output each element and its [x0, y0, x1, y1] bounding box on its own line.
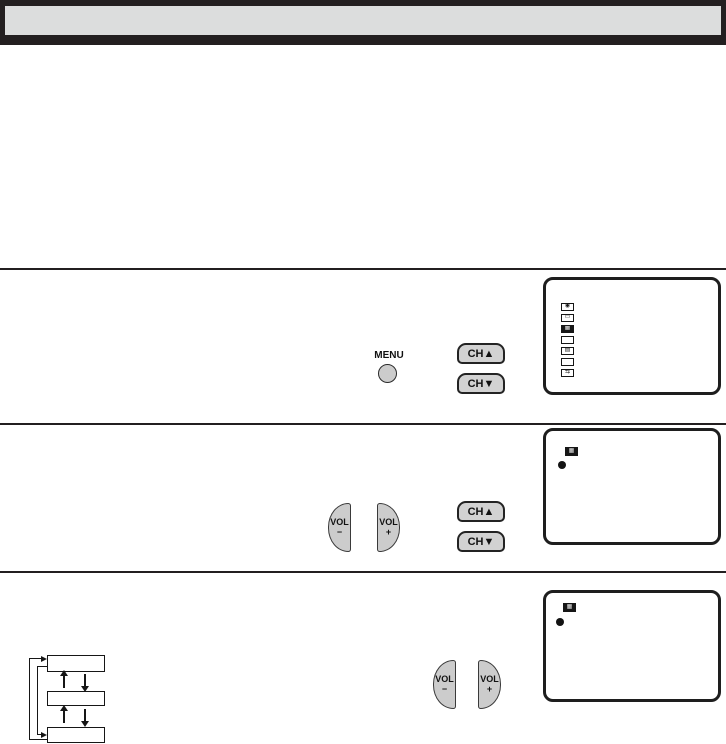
osd-adjust-screen: ▦ [543, 590, 721, 702]
osd-menu-icon-1: ◉ [561, 303, 574, 311]
osd-submenu-screen: ▦ [543, 428, 721, 545]
loop-line-outer-bottom [29, 739, 47, 740]
flow-box-1 [47, 655, 105, 672]
volume-up-sign: + [386, 528, 391, 537]
arrow-down-icon [84, 674, 86, 687]
volume-down-sign: − [337, 528, 342, 537]
channel-down-button-2: CH▼ [457, 531, 505, 552]
channel-down-label-2: CH▼ [468, 536, 495, 548]
section-divider-3 [0, 571, 726, 573]
arrow-up-icon [63, 675, 65, 688]
channel-up-label-2: CH▲ [468, 506, 495, 518]
osd-menu-icon-5: ▤ [561, 347, 574, 355]
section-divider-2 [0, 423, 726, 425]
osd-menu-icon-7: ⇆ [561, 369, 574, 377]
section-divider-1 [0, 268, 726, 270]
channel-up-label: CH▲ [468, 348, 495, 360]
volume-up-button-2: VOL + [478, 660, 501, 709]
volume-down-sign-2: − [442, 685, 447, 694]
osd-menu-icon-6 [561, 358, 574, 366]
channel-up-button-2: CH▲ [457, 501, 505, 522]
volume-up-sign-2: + [487, 685, 492, 694]
arrow-down-icon [84, 709, 86, 722]
osd-menu-icon-column: ◉ ▭ ▦ ▤ ⇆ [561, 303, 574, 380]
channel-up-button: CH▲ [457, 343, 505, 364]
volume-down-button: VOL − [328, 503, 351, 552]
loop-arrowhead-top-icon [41, 656, 47, 662]
selection-bullet [558, 461, 566, 469]
channel-down-button: CH▼ [457, 373, 505, 394]
osd-selected-menu-icon: ▦ [563, 603, 576, 612]
osd-menu-icon-3-selected: ▦ [561, 325, 574, 333]
page-header-bar [0, 0, 726, 45]
arrow-up-icon [63, 710, 65, 723]
osd-selected-menu-icon: ▦ [565, 447, 578, 456]
header-title-area [5, 6, 721, 35]
loop-line-outer-top [29, 658, 41, 659]
menu-button [378, 364, 397, 383]
flow-box-2 [47, 691, 105, 706]
volume-up-button: VOL + [377, 503, 400, 552]
menu-button-label: MENU [370, 350, 408, 361]
manual-page: MENU CH▲ CH▼ ◉ ▭ ▦ ▤ ⇆ VOL − VOL + CH▲ C… [0, 0, 726, 744]
osd-menu-icon-2: ▭ [561, 314, 574, 322]
selection-bullet [556, 618, 564, 626]
volume-down-button-2: VOL − [433, 660, 456, 709]
loop-line-inner-top [37, 666, 47, 667]
osd-menu-icon-4 [561, 336, 574, 344]
loop-line-inner-vertical [37, 666, 38, 735]
channel-down-label: CH▼ [468, 378, 495, 390]
osd-menu-screen: ◉ ▭ ▦ ▤ ⇆ [543, 277, 721, 395]
loop-arrowhead-bottom-icon [41, 732, 47, 738]
flow-box-3 [47, 727, 105, 743]
loop-line-outer-vertical [29, 658, 30, 740]
